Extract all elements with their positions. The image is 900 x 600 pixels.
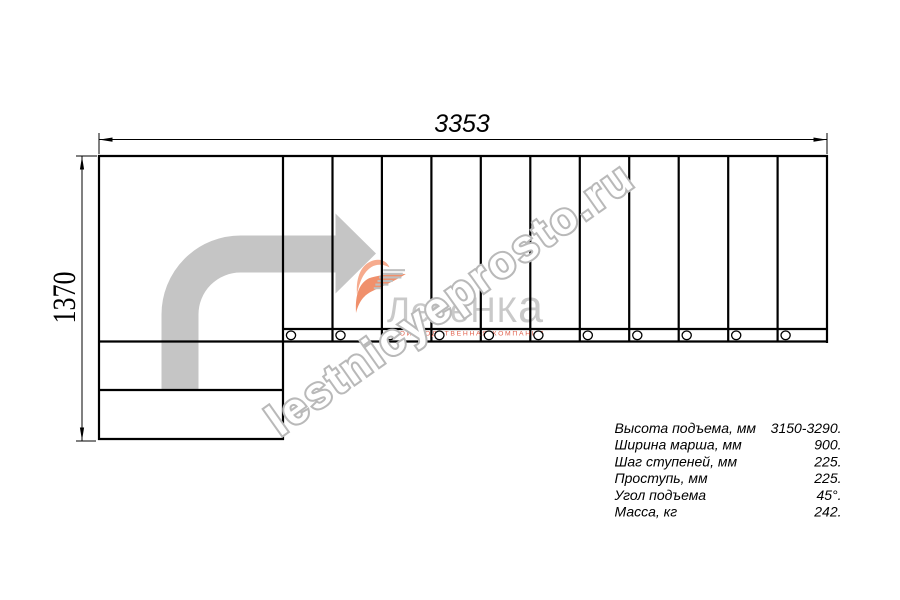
svg-text:225.: 225. [813,453,841,469]
svg-text:225.: 225. [813,470,841,486]
svg-text:Масса, кг: Масса, кг [615,504,678,520]
svg-text:3150-3290.: 3150-3290. [771,420,842,436]
svg-text:3353: 3353 [434,110,490,138]
svg-text:Шаг ступеней, мм: Шаг ступеней, мм [615,453,738,469]
svg-text:45°.: 45°. [816,487,841,503]
svg-text:Высота подъема, мм: Высота подъема, мм [615,420,757,436]
svg-text:Угол подъема: Угол подъема [614,487,707,503]
svg-text:Ширина марша, мм: Ширина марша, мм [615,437,743,453]
svg-text:242.: 242. [813,504,841,520]
svg-text:Проступь, мм: Проступь, мм [615,470,709,486]
svg-text:lestnicyeprosto.ru: lestnicyeprosto.ru [257,152,643,445]
svg-text:1370: 1370 [47,272,83,324]
svg-text:900.: 900. [814,437,841,453]
